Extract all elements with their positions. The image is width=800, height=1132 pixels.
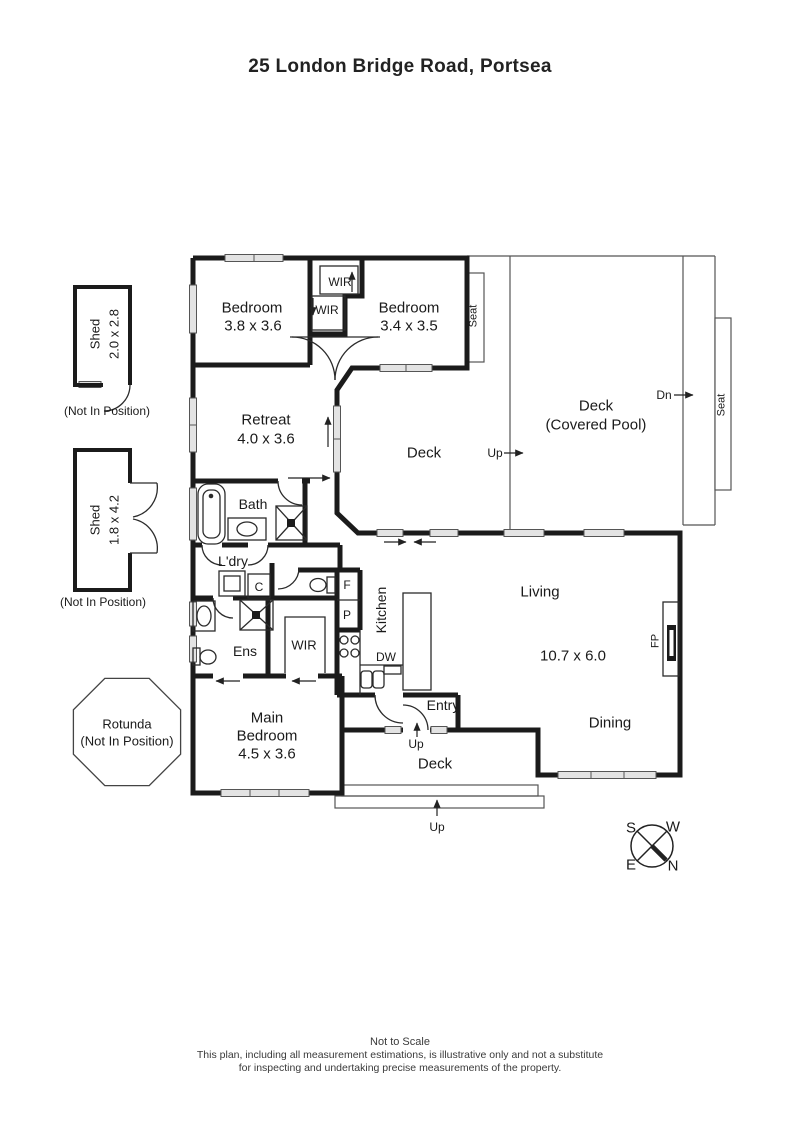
bath-vanity-icon [228,518,266,540]
wir-top-upper-label: WIR [328,276,351,288]
compass-north-needle [652,846,666,860]
joinery [219,266,679,695]
compass-s-label: S [626,821,636,836]
washer-icon [219,571,245,596]
sink-icon [361,671,384,688]
wc-door [278,568,299,589]
deck-bottom-label: Deck [418,757,452,772]
deck-pool-name-label: Deck [579,399,613,414]
living-label: Living [520,585,559,600]
main-bedroom-dims-label: 4.5 x 3.6 [238,747,296,762]
hall-double-door-left [292,337,335,380]
disclaimer-line-1: This plan, including all measurement est… [0,1049,800,1062]
shed-2-double-door [130,483,157,553]
cooktop-icon [340,636,359,657]
footer: Not to Scale This plan, including all me… [0,1036,800,1074]
cupboard-label: C [255,581,264,593]
fridge-label: F [343,579,350,591]
rotunda-name-label: Rotunda [102,718,151,731]
kitchen-label: Kitchen [374,587,388,634]
not-to-scale-note: Not to Scale [0,1036,800,1048]
bedroom1-name-label: Bedroom [222,301,283,316]
entry-label: Entry [427,698,460,712]
shed2-note-label: (Not In Position) [60,596,146,608]
bath-door [278,481,302,505]
windows [79,255,656,797]
bath-label: Bath [239,497,268,511]
shed1-name-label: Shed [89,319,102,349]
rotunda-shape [73,678,180,785]
up-entry-label: Up [408,738,423,750]
bedroom1-dims-label: 3.8 x 3.6 [224,319,282,334]
main-bedroom-1-label: Main [251,711,284,726]
main-bedroom-door [375,695,403,723]
bedroom2-name-label: Bedroom [379,301,440,316]
dn-label-label: Dn [656,389,671,401]
hall-double-door-right [335,337,378,380]
ensuite-door [213,598,233,618]
laundry-door-right [248,545,268,565]
bedroom2-dims-label: 3.4 x 3.5 [380,319,438,334]
bathtub-icon [198,484,225,544]
living-dims-label: 10.7 x 6.0 [540,649,606,664]
dining-label: Dining [589,716,632,731]
retreat-name-label: Retreat [241,413,290,428]
wir-top-lower-label: WIR [315,304,338,316]
shed1-note-label: (Not In Position) [64,405,150,417]
up-middle-label: Up [487,447,502,459]
shed2-dims-label: 1.8 x 4.2 [108,495,121,545]
wir-main-label: WIR [291,639,316,652]
fireplace-label: FP [651,634,662,648]
shed-1 [75,287,130,411]
retreat-dims-label: 4.0 x 3.6 [237,432,295,447]
deck-pool-sub-label: (Covered Pool) [546,418,647,433]
shed2-name-label: Shed [89,505,102,535]
laundry-label: L'dry [218,554,248,568]
ensuite-label: Ens [233,644,257,658]
disclaimer-line-2: for inspecting and undertaking precise m… [0,1062,800,1075]
seat-right-label: Seat [717,394,728,417]
shed1-dims-label: 2.0 x 2.8 [108,309,121,359]
compass-e-label: E [626,858,636,873]
main-bedroom-2-label: Bedroom [237,729,298,744]
compass-w-label: W [666,820,680,835]
kitchen-island [403,593,431,690]
floor-plan [0,0,800,1132]
entry-door [403,705,428,730]
deck-middle-label: Deck [407,446,441,461]
bottom-deck-steps [335,785,544,808]
pantry-label: P [343,609,351,621]
wc-toilet-icon [310,577,335,593]
compass-n-label: N [668,859,679,874]
bath-shower-icon [276,506,307,540]
floor-plan-page: 25 London Bridge Road, Portsea [0,0,800,1132]
fireplace-icon [667,625,676,661]
seat-top-label: Seat [469,305,480,328]
dishwasher-icon [384,666,401,674]
rotunda-note-label: (Not In Position) [80,735,173,748]
dishwasher-label: DW [376,651,396,663]
up-deck-label: Up [429,821,444,833]
